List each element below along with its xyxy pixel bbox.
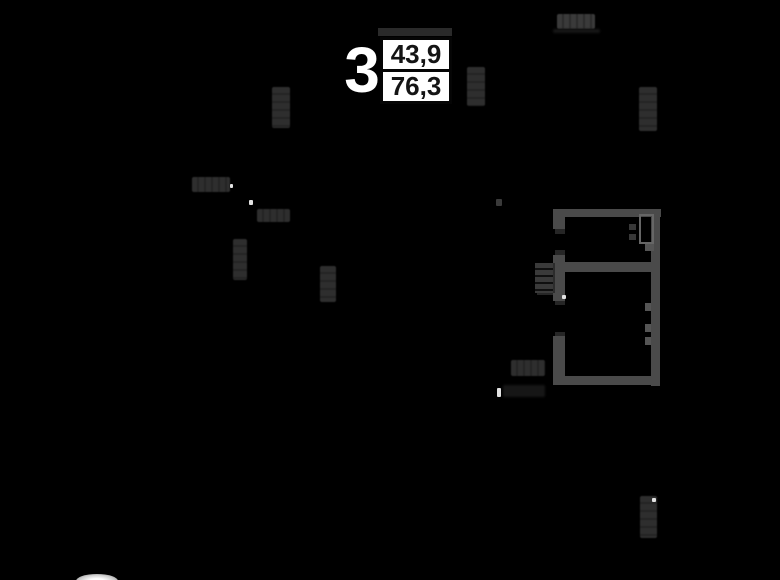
dimension-label-center-lower xyxy=(320,266,336,302)
door-jamb-tick-1 xyxy=(555,229,565,234)
rooms-count-label: 3 xyxy=(344,38,380,102)
dimension-label-center-mid xyxy=(257,209,290,222)
logo-arc xyxy=(76,574,118,580)
dimension-smudge-faint xyxy=(503,385,545,397)
marker-dot-3 xyxy=(496,199,502,206)
dimension-label-top xyxy=(557,14,595,29)
dimension-label-left-upper xyxy=(272,87,290,128)
dimension-underline-top xyxy=(553,29,600,33)
door-jamb-tick-4 xyxy=(555,332,565,336)
wall-left-segment-1 xyxy=(553,209,565,229)
marker-dot-5 xyxy=(652,498,656,502)
area-label-box: 43,9 76,3 xyxy=(380,37,452,104)
dimension-label-right-upper xyxy=(639,87,657,131)
window-tick-1 xyxy=(645,303,651,311)
living-area-value: 43,9 xyxy=(383,40,449,69)
marker-dot-6 xyxy=(562,295,566,299)
door-jamb-tick-3 xyxy=(555,301,565,305)
furniture-tick-1 xyxy=(629,224,636,230)
wall-bottom xyxy=(553,376,660,385)
door-jamb-tick-2 xyxy=(555,250,565,255)
dimension-label-left-mid xyxy=(192,177,230,192)
dimension-label-left-lower xyxy=(233,239,247,280)
wall-middle-horizontal xyxy=(556,262,652,272)
furniture-tick-2 xyxy=(629,234,636,240)
dimension-label-center-upper xyxy=(467,67,485,106)
marker-dot-4 xyxy=(497,388,501,397)
total-area-value: 76,3 xyxy=(383,72,449,101)
marker-dot-2 xyxy=(249,200,253,205)
label-top-bar xyxy=(378,28,452,36)
marker-dot-1 xyxy=(230,184,233,188)
wall-left-segment-3 xyxy=(553,336,565,385)
dimension-label-near-plan xyxy=(511,360,545,376)
closet-outline xyxy=(639,214,654,244)
window-tick-3 xyxy=(645,337,651,345)
closet-foot-mark xyxy=(645,244,654,251)
floorplan-canvas: 3 43,9 76,3 xyxy=(0,0,780,580)
radiator-icon xyxy=(535,263,555,293)
window-tick-2 xyxy=(645,324,651,332)
dimension-label-bottom-right xyxy=(640,496,657,538)
